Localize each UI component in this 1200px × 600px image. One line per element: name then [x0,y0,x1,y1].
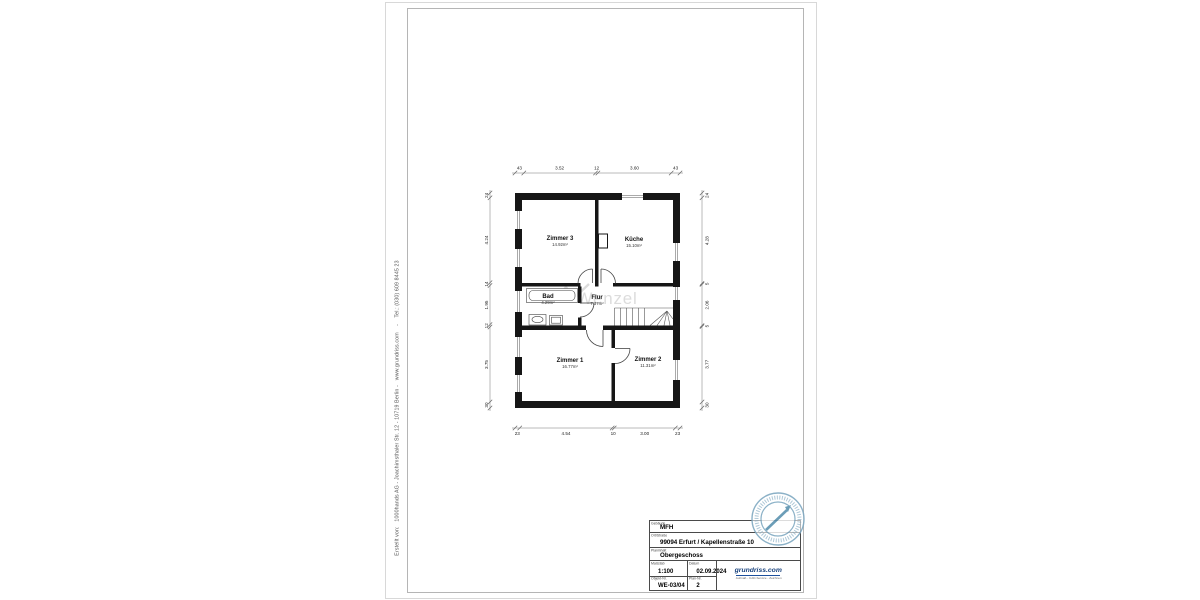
round-stamp-seal [750,491,806,547]
dim-bottom-1: 4.54 [562,431,571,436]
field-value-planinhalt: Obergeschoss [660,552,703,559]
chimney-block [599,234,608,248]
room-area-zimmer1: 16.77m² [562,364,578,369]
door-zimmer1 [587,330,604,347]
floor-plan-drawing: Wenzel [455,148,725,448]
logo-tagline: Aufmaß - CAD-Service - Zeichnen [735,577,781,580]
room-area-zimmer2: 11.31m² [640,363,656,368]
field-value-ort: 99094 Erfurt / Kapellenstraße 10 [660,539,754,546]
dim-left-2: 14 [484,281,489,287]
field-label-ort: Ort/Straße [651,534,667,537]
dim-left-1: 4.24 [484,235,489,244]
dim-left-3: 1.95 [484,300,489,309]
window-top-kitchen [622,193,643,200]
field-label-datum: Datum [689,562,699,565]
field-label-massstab: Maßstab [651,562,665,565]
window-left-4 [515,337,522,357]
dim-bottom-3: 3.00 [640,431,649,436]
field-label-objekt-nr: Objekt-Nr. [651,577,667,580]
door-kueche [601,269,616,284]
cell-plan-nr: Plan-Nr. 2 [688,576,715,591]
title-block-col-b: Datum 02.09.2024 Plan-Nr. 2 [687,561,715,590]
staircase [615,308,674,326]
room-area-bad: 4.29m² [541,300,555,305]
window-left-1 [515,211,522,229]
dim-left-0: 24 [484,192,489,198]
cell-datum: Datum 02.09.2024 [688,561,715,576]
room-area-zimmer3: 14.92m² [552,242,568,247]
dim-top-0: 43 [517,166,523,171]
dim-right-5: 3.77 [705,359,710,368]
grundriss-logo-text: grundriss.com [717,567,800,574]
plan-sheet-screen: Erstellt von: 1000hands AG - Joachimstha… [0,0,1200,600]
dim-bottom-4: 23 [675,431,681,436]
room-area-kueche: 15.10m² [626,243,642,248]
door-zimmer3 [578,269,593,284]
window-right-1 [673,243,680,261]
field-value-massstab: 1:100 [658,569,673,575]
dim-right-1: 4.28 [705,236,710,245]
cell-massstab: Maßstab 1:100 [650,561,687,576]
window-left-2 [515,249,522,267]
dim-left-5: 3.75 [484,360,489,369]
dim-right-4: 5 [705,324,710,327]
dim-right-0: 24 [705,192,710,198]
cell-objekt-nr: Objekt-Nr. WE-03/04 [650,576,687,591]
cell-logo: grundriss.com Aufmaß - CAD-Service - Zei… [716,561,800,590]
field-label-plan-nr: Plan-Nr. [689,577,702,580]
door-zimmer2 [615,349,630,364]
dim-top-2: 12 [594,166,600,171]
title-block-bottom: Maßstab 1:100 Objekt-Nr. WE-03/04 Datum … [650,561,800,590]
dim-top-3: 3.60 [630,166,639,171]
window-left-3 [515,291,522,312]
dim-bottom-0: 23 [515,431,521,436]
field-value-gebaeude: MFH [660,524,673,531]
room-area-flur: 7.37m² [590,301,604,306]
field-value-plan-nr: 2 [696,583,699,589]
dim-top-1: 3.52 [555,166,564,171]
field-value-objekt-nr: WE-03/04 [658,583,685,589]
dim-left-6: 30 [484,402,489,408]
window-left-5 [515,375,522,392]
watermark-text: Wenzel [576,289,637,308]
credit-line: Erstellt von: 1000hands AG - Joachimstha… [394,260,400,555]
logo-underline [736,575,780,576]
dim-right-2: 5 [705,282,710,285]
dim-right-3: 2.06 [705,300,710,309]
title-block-col-a: Maßstab 1:100 Objekt-Nr. WE-03/04 [650,561,687,590]
window-right-3 [673,360,680,380]
title-block-row-planinhalt: Planinhalt Obergeschoss [650,548,800,561]
dim-top-4: 43 [673,166,679,171]
dim-bottom-2: 10 [611,431,617,436]
window-right-2 [673,287,680,300]
dim-right-6: 30 [705,402,710,408]
dim-left-4: 12 [484,323,489,329]
